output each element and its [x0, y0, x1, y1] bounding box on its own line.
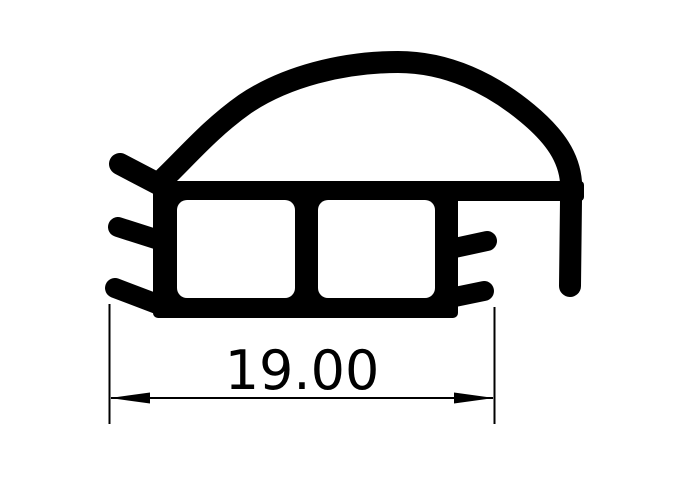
right-fin-top	[450, 241, 487, 249]
drawing-canvas: 19.00	[0, 0, 700, 491]
dimension-label: 19.00	[225, 339, 380, 402]
chamber-right	[318, 200, 435, 298]
dimension-arrow-left	[110, 393, 150, 404]
dimension-arrow-right	[454, 393, 494, 404]
seal-profile-drawing: 19.00	[0, 0, 700, 491]
chamber-left	[177, 200, 295, 298]
right-fin-bottom	[450, 291, 484, 298]
profile-body-group	[115, 62, 584, 318]
left-lip-fin	[120, 164, 164, 187]
dimension-19: 19.00	[110, 304, 495, 424]
